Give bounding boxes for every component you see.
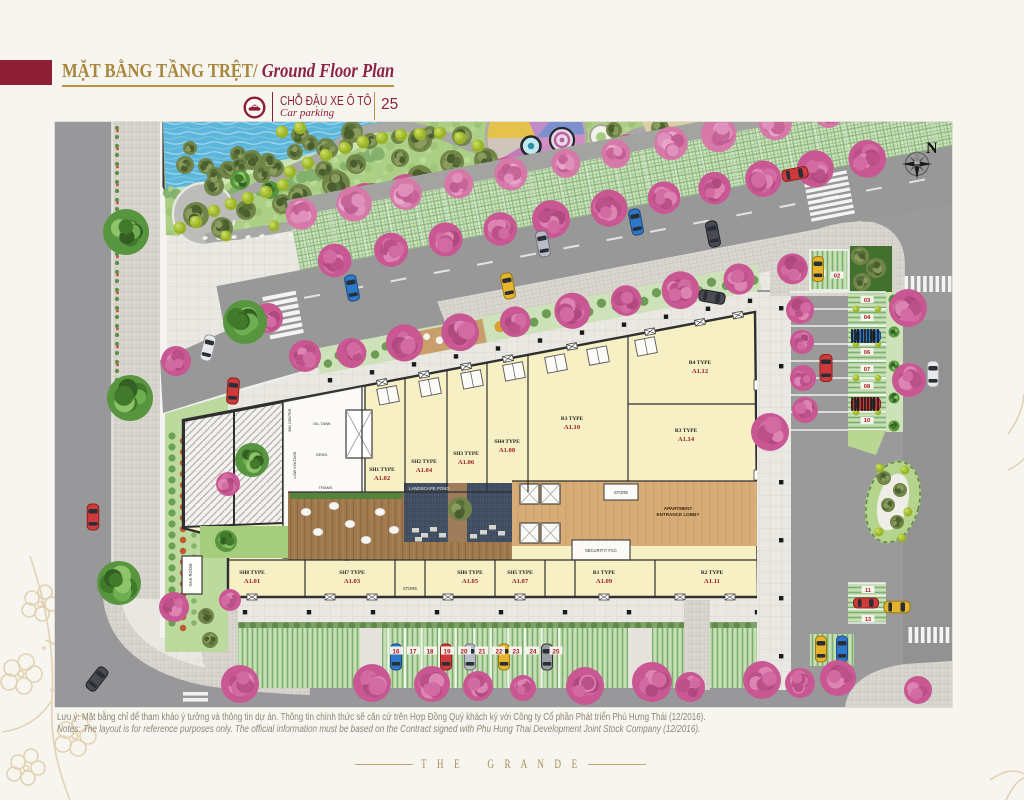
svg-text:17: 17 xyxy=(410,649,417,656)
svg-text:A1.04: A1.04 xyxy=(416,467,433,474)
svg-text:A1.12: A1.12 xyxy=(692,368,709,375)
svg-text:OIL TANK: OIL TANK xyxy=(313,421,331,426)
svg-text:18: 18 xyxy=(427,649,434,656)
svg-text:STORE: STORE xyxy=(614,490,629,495)
svg-text:A1.11: A1.11 xyxy=(704,578,720,585)
svg-text:A1.07: A1.07 xyxy=(512,578,529,585)
svg-text:N: N xyxy=(926,140,938,157)
svg-text:BIN CENTER: BIN CENTER xyxy=(288,408,292,431)
svg-text:11: 11 xyxy=(865,588,871,594)
svg-text:22: 22 xyxy=(496,649,503,656)
svg-text:A1.09: A1.09 xyxy=(596,578,613,585)
svg-text:TRANS.: TRANS. xyxy=(319,485,334,490)
svg-text:GENS.: GENS. xyxy=(316,452,328,457)
svg-text:A1.01: A1.01 xyxy=(244,578,260,585)
svg-text:20: 20 xyxy=(461,649,468,656)
svg-text:SH4 TYPE: SH4 TYPE xyxy=(494,439,520,445)
svg-text:STORE: STORE xyxy=(403,586,418,591)
svg-text:SH5 TYPE: SH5 TYPE xyxy=(507,570,533,576)
svg-text:SH7 TYPE: SH7 TYPE xyxy=(339,570,365,576)
svg-text:R3 TYPE: R3 TYPE xyxy=(675,428,698,434)
svg-text:21: 21 xyxy=(479,649,486,656)
svg-text:ENTRANCE LOBBY: ENTRANCE LOBBY xyxy=(657,512,700,517)
svg-text:04: 04 xyxy=(864,315,871,321)
svg-text:A1.02: A1.02 xyxy=(374,475,391,482)
svg-text:A1.05: A1.05 xyxy=(462,578,479,585)
svg-text:19: 19 xyxy=(444,649,451,656)
svg-text:24: 24 xyxy=(530,649,537,656)
svg-text:A1.06: A1.06 xyxy=(458,459,475,466)
svg-text:R4 TYPE: R4 TYPE xyxy=(689,360,712,366)
svg-text:A1.14: A1.14 xyxy=(678,436,695,443)
svg-text:APARTMENT: APARTMENT xyxy=(664,506,693,511)
svg-text:13: 13 xyxy=(865,617,871,623)
svg-text:A1.10: A1.10 xyxy=(564,424,581,431)
svg-text:A1.08: A1.08 xyxy=(499,447,516,454)
svg-text:07: 07 xyxy=(864,367,870,373)
svg-text:08: 08 xyxy=(864,384,871,390)
svg-text:A1.03: A1.03 xyxy=(344,578,361,585)
svg-text:SH8 TYPE: SH8 TYPE xyxy=(239,570,265,576)
svg-text:25: 25 xyxy=(553,649,560,656)
svg-text:03: 03 xyxy=(864,298,871,304)
svg-text:LANDSCAPE POND: LANDSCAPE POND xyxy=(409,486,450,491)
svg-text:10: 10 xyxy=(864,418,870,424)
svg-text:SH1 TYPE: SH1 TYPE xyxy=(369,467,395,473)
svg-text:02: 02 xyxy=(834,274,840,280)
svg-text:23: 23 xyxy=(513,649,520,656)
svg-text:16: 16 xyxy=(393,649,400,656)
svg-text:LOW VOLTAGE: LOW VOLTAGE xyxy=(293,451,297,479)
svg-text:R1 TYPE: R1 TYPE xyxy=(593,570,616,576)
svg-text:SH3 TYPE: SH3 TYPE xyxy=(453,451,479,457)
svg-text:GAS ROOM: GAS ROOM xyxy=(188,563,193,587)
svg-text:SH2 TYPE: SH2 TYPE xyxy=(411,459,437,465)
svg-text:SECURITY/ FCC: SECURITY/ FCC xyxy=(585,548,617,553)
svg-text:R3 TYPE: R3 TYPE xyxy=(561,416,584,422)
svg-text:R2 TYPE: R2 TYPE xyxy=(701,570,724,576)
svg-text:06: 06 xyxy=(864,350,871,356)
svg-text:SH6 TYPE: SH6 TYPE xyxy=(457,570,483,576)
